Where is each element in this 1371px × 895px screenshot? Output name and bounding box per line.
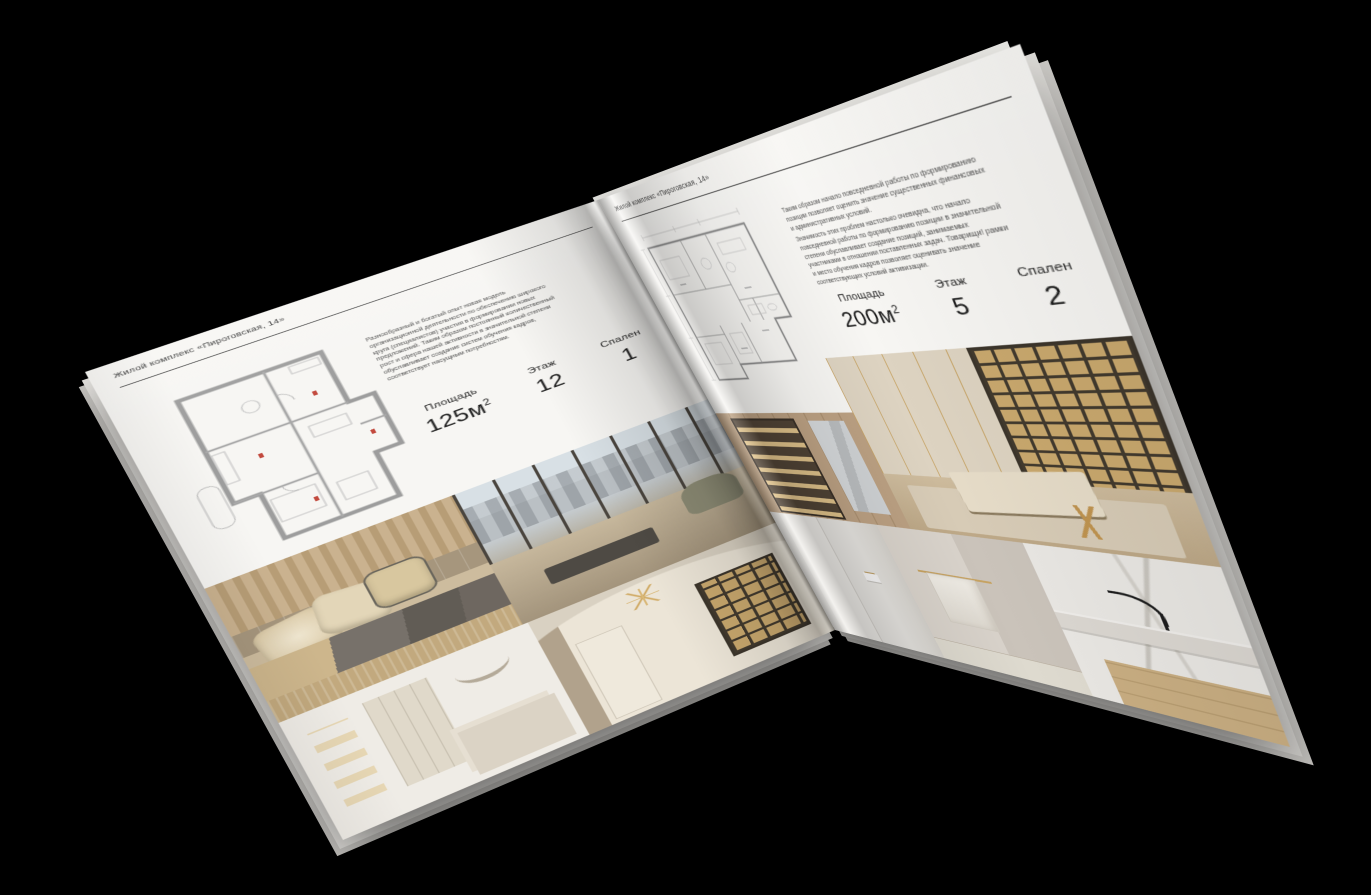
stat-floor: Этаж 12 <box>501 350 595 407</box>
scene: Жилой комплекс «Пироговская, 14» <box>0 0 1371 895</box>
stat-area: Площадь 125м2 <box>398 378 514 444</box>
photo-detail <box>575 625 664 720</box>
photo-detail <box>458 693 577 775</box>
photo-detail <box>307 718 388 807</box>
stat-floor-value: 5 <box>914 288 1013 325</box>
stat-area-value: 200м2 <box>823 300 924 335</box>
photo-detail <box>448 644 515 690</box>
stat-bedrooms: Спален 1 <box>580 322 671 378</box>
stat-bedrooms: Спален 2 <box>993 255 1115 316</box>
stat-area: Площадь 200м2 <box>816 284 924 335</box>
photo-detail <box>362 677 472 787</box>
stat-bedrooms-value: 2 <box>1001 275 1115 317</box>
